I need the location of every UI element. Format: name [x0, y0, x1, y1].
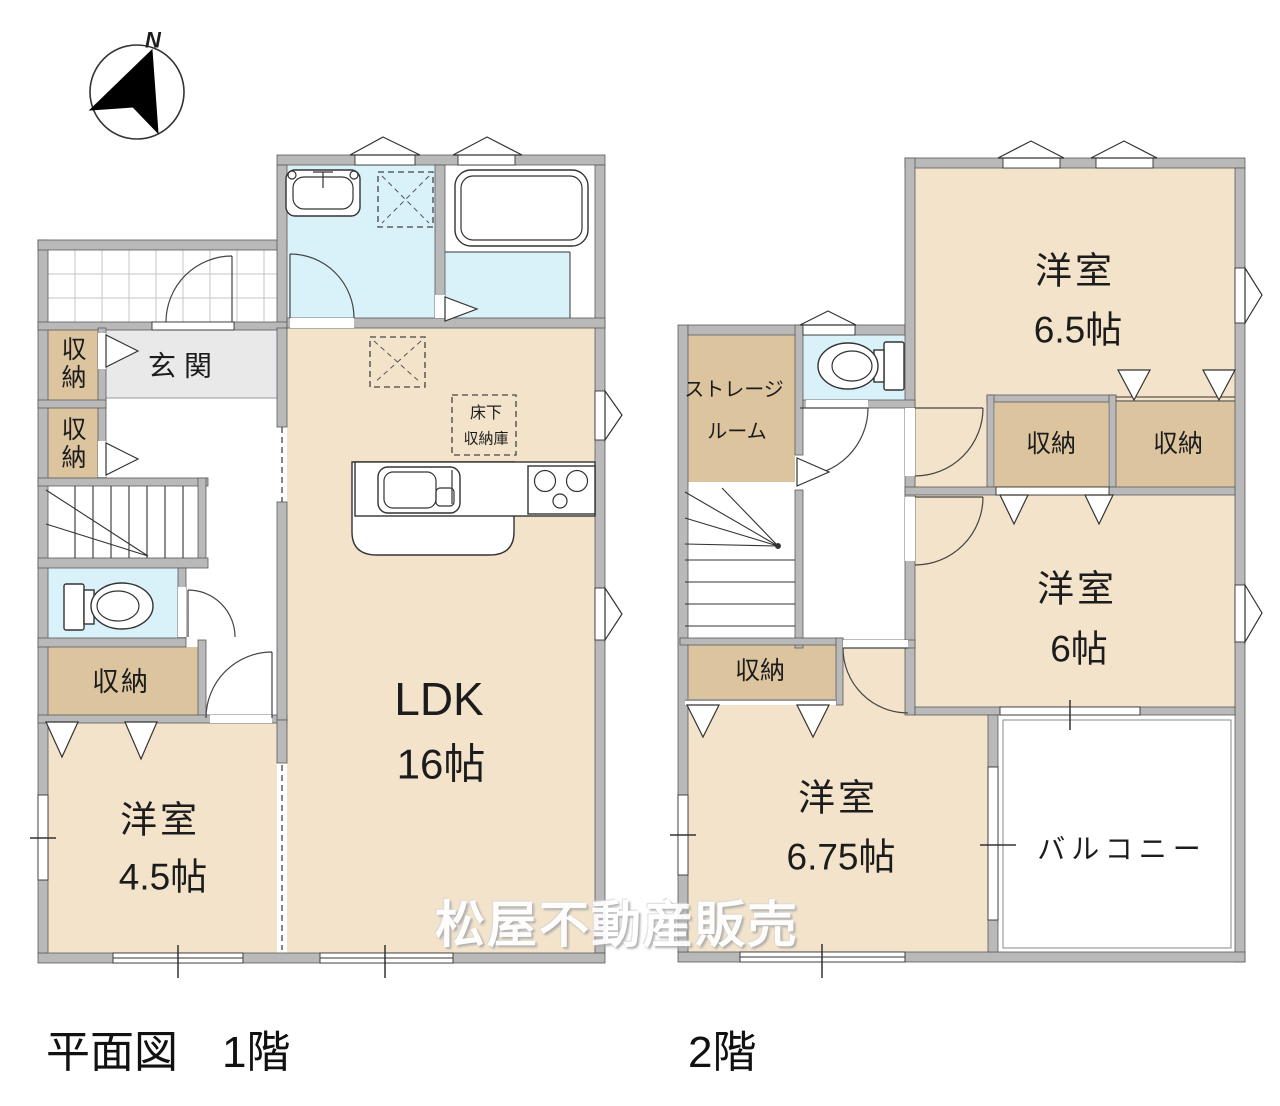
room-label-balcony: バルコニー [1037, 833, 1206, 864]
room-label-bedroom65: 洋室 [1035, 250, 1115, 291]
room-label-storageroom-line1: ストレージ [684, 379, 784, 401]
floor1-plan [30, 137, 622, 978]
room-label-bedroom6: 洋室 [1037, 568, 1117, 609]
room-label-storageroom-line2: ルーム [707, 421, 766, 443]
label-underfloor-storage-line2: 収納庫 [463, 432, 508, 449]
room-label-bedroom675-size: 6.75帖 [786, 836, 895, 877]
room-label-closet-b: 収納 [1153, 430, 1203, 458]
compass-north-label: N [145, 29, 161, 54]
caption-floor2: 2階 [688, 1016, 756, 1080]
room-label-ldk-size: 16帖 [397, 740, 486, 787]
room-label-entrance: 玄関 [148, 350, 220, 381]
caption-floor1: 平面図 1階 [46, 1016, 290, 1080]
label-underfloor-storage-line1: 床下 [470, 405, 502, 423]
room-label-bedroom6-size: 6帖 [1050, 628, 1108, 669]
room-label-bedroom1f-size: 4.5帖 [119, 856, 207, 897]
room-label-bedroom675: 洋室 [798, 777, 878, 818]
room-label-bedroom1f: 洋室 [120, 799, 200, 840]
room-label-bedroom65-size: 6.5帖 [1034, 309, 1122, 350]
floorplan-page: N 玄関 収納 収納 収納 LDK 16帖 洋室 4.5帖 床下 収納庫 ストレ… [0, 0, 1280, 1106]
watermark-text: 松屋不動産販売 [435, 885, 799, 957]
room-label-closet-mid: 収納 [58, 416, 86, 472]
room-label-ldk: LDK [394, 674, 483, 726]
compass-icon [90, 45, 184, 139]
room-label-closet-a: 収納 [1026, 430, 1076, 458]
room-label-closet-bottom: 収納 [92, 667, 150, 697]
room-label-closet-top: 収納 [58, 336, 86, 392]
room-label-closet-c: 収納 [735, 657, 785, 685]
